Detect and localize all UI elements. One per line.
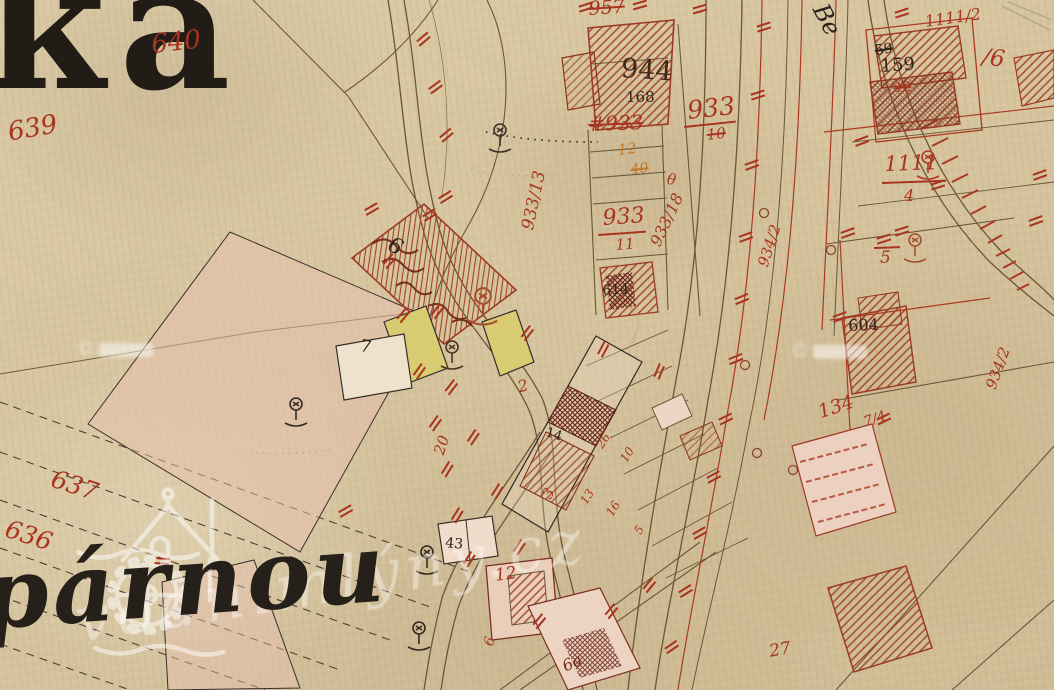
building-number: 43 xyxy=(445,536,464,552)
parcel-number: 1111 xyxy=(884,152,938,175)
parcel-number: /6 xyxy=(981,46,1006,72)
parcel-number: 27 xyxy=(768,640,792,660)
building-number: 614 xyxy=(602,282,630,298)
watermark-tile: © xyxy=(78,338,153,361)
parcel-number: 933 xyxy=(602,205,645,230)
building-number: 944 xyxy=(620,55,673,86)
parcel-number: 640 xyxy=(150,27,202,58)
building-number: 604 xyxy=(848,317,879,334)
place-name-fragment: párnou xyxy=(0,520,391,644)
place-name-fragment: ka xyxy=(0,0,245,114)
parcel-number-struck: 40 xyxy=(630,161,649,177)
parcel-subnumber: 4 xyxy=(904,188,914,204)
parcel-number-struck: 957 xyxy=(588,0,626,19)
map-canvas[interactable]: vodnímlýny.cz © © ka párnou Be 640 639 6… xyxy=(0,0,1054,690)
parcel-subnumber: 11 xyxy=(615,237,635,253)
parcel-number-struck: #933 xyxy=(588,112,644,134)
building-number: 168 xyxy=(626,90,655,105)
parcel-number-struck: 12 xyxy=(894,81,911,95)
parcel-subnumber-struck: 10 xyxy=(706,126,727,143)
building-number: 159 xyxy=(880,56,916,76)
parcel-number: 12 xyxy=(617,141,638,158)
parcel-subnumber: 5 xyxy=(880,250,891,267)
parcel-number: 933 xyxy=(686,93,736,123)
watermark-tile: © xyxy=(792,340,867,363)
building-number: 12 xyxy=(494,565,518,585)
